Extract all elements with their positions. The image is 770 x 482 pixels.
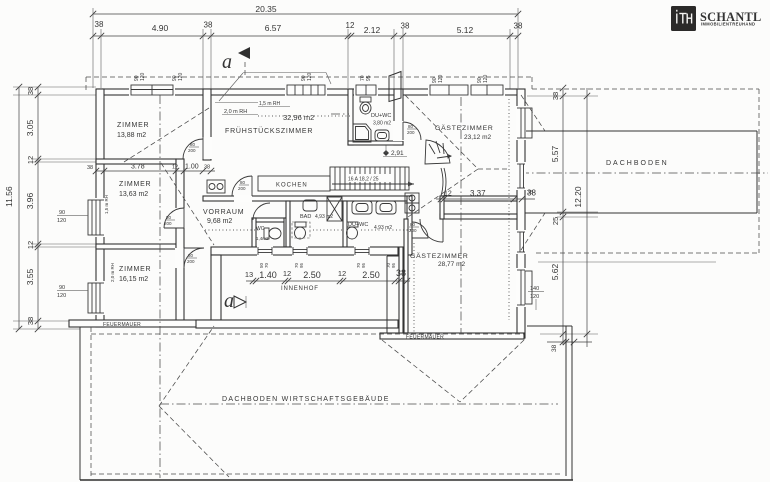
svg-text:2,0 m RH: 2,0 m RH: [224, 109, 247, 115]
svg-text:3.55: 3.55: [25, 268, 35, 285]
svg-text:38: 38: [396, 268, 406, 278]
svg-text:3.37: 3.37: [470, 189, 486, 198]
svg-text:38: 38: [401, 22, 410, 31]
svg-text:ZIMMER: ZIMMER: [117, 122, 149, 129]
svg-text:BAD: BAD: [300, 214, 311, 220]
svg-text:12: 12: [338, 269, 346, 278]
svg-text:20.35: 20.35: [255, 4, 277, 14]
svg-text:a: a: [222, 51, 232, 73]
svg-text:38: 38: [87, 165, 93, 171]
svg-text:16,15 m2: 16,15 m2: [119, 276, 148, 283]
svg-text:38: 38: [204, 21, 213, 30]
svg-text:1.40: 1.40: [259, 270, 277, 280]
svg-text:4,93 m2: 4,93 m2: [315, 214, 333, 220]
svg-text:23,12 m2: 23,12 m2: [464, 134, 491, 141]
svg-text:120: 120: [483, 74, 489, 83]
svg-text:200: 200: [407, 130, 415, 135]
svg-text:ZIMMER: ZIMMER: [119, 266, 151, 273]
svg-text:3.96: 3.96: [25, 192, 35, 209]
svg-text:120: 120: [438, 74, 444, 83]
svg-text:38: 38: [204, 165, 210, 171]
svg-text:6.57: 6.57: [265, 23, 282, 33]
svg-text:80: 80: [188, 253, 194, 258]
svg-text:2.12: 2.12: [364, 25, 381, 35]
svg-text:1,5 m RH: 1,5 m RH: [259, 101, 281, 107]
svg-text:1.00: 1.00: [185, 164, 199, 171]
svg-text:13: 13: [245, 270, 253, 279]
svg-text:12: 12: [172, 165, 178, 171]
svg-text:DACHBODEN WIRTSCHAFTSGEBÄUDE: DACHBODEN WIRTSCHAFTSGEBÄUDE: [222, 395, 390, 403]
svg-text:INNENHOF: INNENHOF: [281, 286, 319, 292]
svg-text:2,0 m RH: 2,0 m RH: [110, 263, 115, 282]
svg-text:120: 120: [530, 294, 539, 300]
svg-text:140: 140: [530, 286, 539, 292]
svg-text:DU+WC: DU+WC: [348, 222, 368, 228]
svg-text:12: 12: [26, 241, 35, 249]
svg-text:GÄSTEZIMMER: GÄSTEZIMMER: [435, 124, 494, 132]
svg-text:80: 80: [408, 124, 414, 129]
svg-text:DU+WC: DU+WC: [371, 113, 391, 119]
svg-text:a: a: [224, 290, 234, 312]
svg-text:9,68 m2: 9,68 m2: [207, 218, 232, 225]
svg-text:5.12: 5.12: [457, 25, 474, 35]
svg-text:ZIMMER: ZIMMER: [119, 181, 151, 188]
svg-text:16 A 18,2 / 25: 16 A 18,2 / 25: [348, 177, 379, 183]
svg-text:12: 12: [346, 21, 355, 30]
svg-text:95: 95: [361, 262, 366, 268]
svg-text:13,88 m2: 13,88 m2: [117, 132, 146, 139]
svg-text:11.56: 11.56: [4, 186, 14, 207]
svg-text:70: 70: [264, 262, 269, 268]
svg-text:200: 200: [188, 148, 196, 153]
svg-text:25: 25: [551, 217, 560, 225]
svg-text:200: 200: [238, 186, 246, 191]
svg-text:VORRAUM: VORRAUM: [203, 209, 244, 216]
svg-text:80: 80: [410, 222, 416, 227]
svg-text:38: 38: [95, 20, 104, 29]
svg-text:80: 80: [166, 215, 172, 220]
svg-text:3.05: 3.05: [25, 119, 35, 136]
svg-text:95: 95: [366, 75, 372, 81]
svg-text:2.50: 2.50: [362, 270, 380, 280]
svg-text:WC: WC: [256, 226, 265, 232]
svg-text:38: 38: [527, 189, 536, 198]
svg-text:90: 90: [59, 285, 65, 291]
svg-text:32,96 m2: 32,96 m2: [283, 113, 314, 122]
svg-text:95: 95: [299, 262, 304, 268]
svg-text:120: 120: [140, 72, 146, 81]
svg-text:80: 80: [190, 142, 196, 147]
svg-text:12.20: 12.20: [573, 186, 583, 208]
svg-text:1,4m2: 1,4m2: [256, 236, 269, 241]
svg-text:1,5 m RH: 1,5 m RH: [104, 195, 109, 214]
svg-text:120: 120: [307, 72, 313, 81]
svg-text:90: 90: [59, 210, 65, 216]
svg-text:2.50: 2.50: [303, 270, 321, 280]
svg-text:38: 38: [26, 87, 35, 95]
svg-text:12: 12: [26, 156, 35, 164]
svg-text:38: 38: [551, 344, 558, 352]
svg-text:12: 12: [444, 191, 452, 198]
svg-text:FRÜHSTÜCKSZIMMER: FRÜHSTÜCKSZIMMER: [225, 127, 313, 135]
svg-text:200: 200: [187, 259, 195, 264]
svg-text:2,91: 2,91: [391, 150, 404, 157]
svg-text:3,80 m2: 3,80 m2: [373, 121, 391, 127]
svg-text:28,77 m2: 28,77 m2: [438, 261, 465, 268]
svg-text:4.90: 4.90: [152, 23, 169, 33]
svg-text:3.78: 3.78: [131, 164, 145, 171]
svg-text:GÄSTEZIMMER: GÄSTEZIMMER: [410, 252, 469, 260]
svg-text:IMMOBILIENTREUHAND: IMMOBILIENTREUHAND: [701, 22, 755, 27]
svg-text:KOCHEN: KOCHEN: [276, 183, 308, 189]
svg-text:DACHBODEN: DACHBODEN: [606, 160, 669, 167]
svg-text:12: 12: [283, 269, 291, 278]
svg-text:5.62: 5.62: [550, 263, 560, 280]
svg-text:13,63 m2: 13,63 m2: [119, 191, 148, 198]
svg-text:120: 120: [57, 218, 66, 224]
svg-text:5.57: 5.57: [550, 145, 560, 162]
svg-text:FEUERMAUER: FEUERMAUER: [406, 334, 444, 340]
svg-text:120: 120: [57, 293, 66, 299]
svg-text:80: 80: [240, 180, 246, 185]
svg-text:120: 120: [178, 72, 184, 81]
svg-text:FEUERMAUER: FEUERMAUER: [103, 322, 141, 328]
svg-text:200: 200: [164, 221, 172, 226]
